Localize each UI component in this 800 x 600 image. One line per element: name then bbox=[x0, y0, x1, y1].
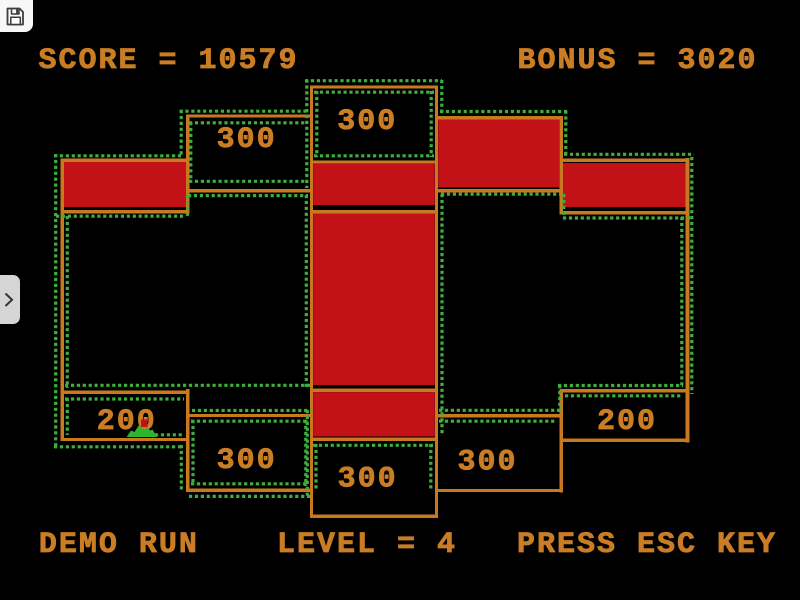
svg-text:DEMO RUN: DEMO RUN bbox=[39, 528, 199, 562]
svg-text:300: 300 bbox=[217, 444, 277, 478]
svg-text:SCORE = 10579: SCORE = 10579 bbox=[39, 44, 299, 78]
svg-text:200: 200 bbox=[597, 405, 657, 439]
svg-text:300: 300 bbox=[217, 123, 277, 157]
svg-text:300: 300 bbox=[338, 462, 398, 496]
svg-text:300: 300 bbox=[337, 105, 397, 139]
svg-text:300: 300 bbox=[458, 445, 518, 479]
svg-text:BONUS = 3020: BONUS = 3020 bbox=[518, 44, 758, 78]
svg-text:PRESS ESC KEY: PRESS ESC KEY bbox=[517, 528, 777, 562]
svg-text:LEVEL = 4: LEVEL = 4 bbox=[277, 528, 457, 562]
